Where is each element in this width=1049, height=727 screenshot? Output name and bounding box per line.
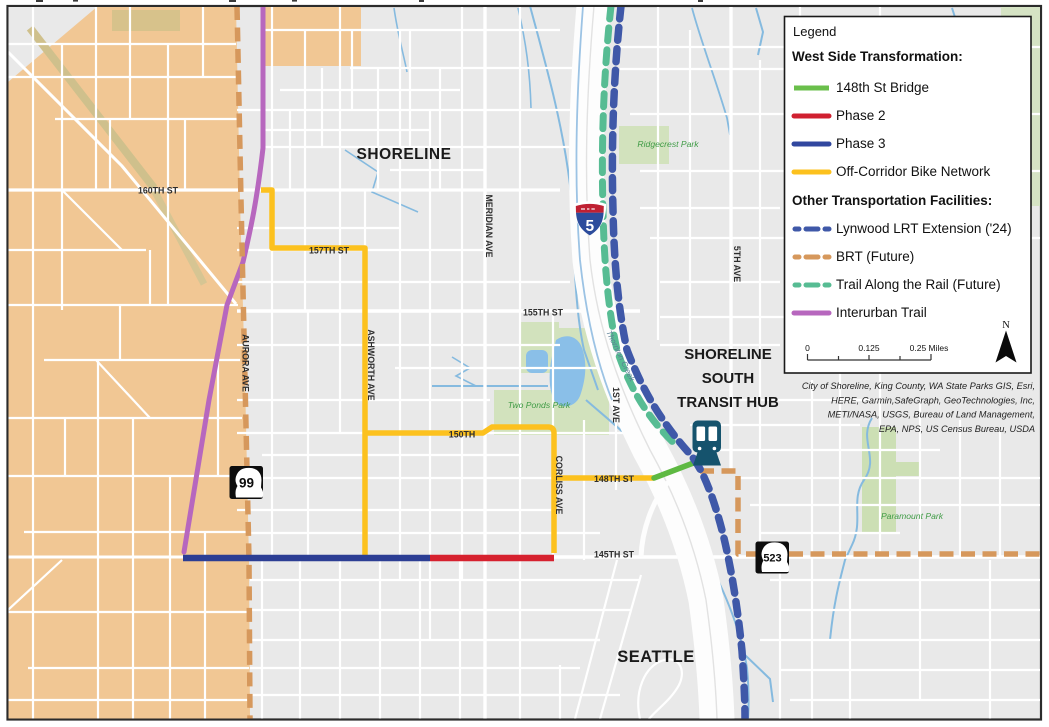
svg-text:TRANSIT HUB: TRANSIT HUB xyxy=(677,394,779,411)
svg-text:0.25 Miles: 0.25 Miles xyxy=(910,343,949,353)
svg-text:MERIDIAN AVE: MERIDIAN AVE xyxy=(484,194,494,257)
svg-text:1ST AVE: 1ST AVE xyxy=(611,387,621,423)
svg-text:523: 523 xyxy=(763,553,781,565)
svg-text:145TH ST: 145TH ST xyxy=(594,550,635,560)
svg-text:Other Transportation Facilitie: Other Transportation Facilities: xyxy=(792,193,992,208)
svg-text:157TH ST: 157TH ST xyxy=(309,246,350,256)
svg-text:SHORELINE: SHORELINE xyxy=(684,346,772,363)
svg-text:0: 0 xyxy=(805,343,810,353)
svg-text:Phase 3: Phase 3 xyxy=(836,136,886,151)
svg-text:Paramount Park: Paramount Park xyxy=(881,511,944,521)
svg-text:148TH ST: 148TH ST xyxy=(594,474,635,484)
svg-text:Interurban Trail: Interurban Trail xyxy=(836,305,927,320)
svg-text:148th St Bridge: 148th St Bridge xyxy=(836,80,929,95)
svg-text:Phase 2: Phase 2 xyxy=(836,108,886,123)
svg-text:Off-Corridor Bike Network: Off-Corridor Bike Network xyxy=(836,164,991,179)
svg-text:City of Shoreline, King County: City of Shoreline, King County, WA State… xyxy=(802,381,1035,391)
svg-text:160TH ST: 160TH ST xyxy=(138,186,179,196)
svg-text:Two Ponds Park: Two Ponds Park xyxy=(508,400,571,410)
svg-text:0.125: 0.125 xyxy=(858,343,880,353)
svg-text:Trail Along the Rail (Future): Trail Along the Rail (Future) xyxy=(836,277,1001,292)
svg-text:5: 5 xyxy=(585,218,594,235)
svg-text:155TH ST: 155TH ST xyxy=(523,308,564,318)
svg-text:CORLISS AVE: CORLISS AVE xyxy=(554,456,564,515)
svg-text:EPA, NPS, US Census Bureau, US: EPA, NPS, US Census Bureau, USDA xyxy=(879,424,1035,434)
svg-text:BRT (Future): BRT (Future) xyxy=(836,249,914,264)
svg-text:AURORA AVE: AURORA AVE xyxy=(241,334,251,392)
svg-text:Ridgecrest Park: Ridgecrest Park xyxy=(637,139,699,149)
svg-text:99: 99 xyxy=(239,476,254,491)
svg-text:150TH: 150TH xyxy=(449,430,475,440)
svg-text:SHORELINE: SHORELINE xyxy=(357,146,452,163)
svg-text:Legend: Legend xyxy=(793,24,836,39)
svg-text:SEATTLE: SEATTLE xyxy=(617,648,694,666)
svg-text:5TH AVE: 5TH AVE xyxy=(732,246,742,282)
svg-text:SOUTH: SOUTH xyxy=(702,370,755,387)
svg-text:METI/NASA, USGS, Bureau of Lan: METI/NASA, USGS, Bureau of Land Manageme… xyxy=(828,410,1035,420)
svg-text:Lynwood LRT Extension ('24): Lynwood LRT Extension ('24) xyxy=(836,221,1012,236)
svg-text:N: N xyxy=(1002,320,1010,331)
svg-text:ASHWORTH AVE: ASHWORTH AVE xyxy=(366,329,376,400)
svg-text:HERE, Garmin,SafeGraph, GeoTec: HERE, Garmin,SafeGraph, GeoTechnologies,… xyxy=(831,395,1035,405)
svg-text:West Side Transformation:: West Side Transformation: xyxy=(792,49,963,64)
